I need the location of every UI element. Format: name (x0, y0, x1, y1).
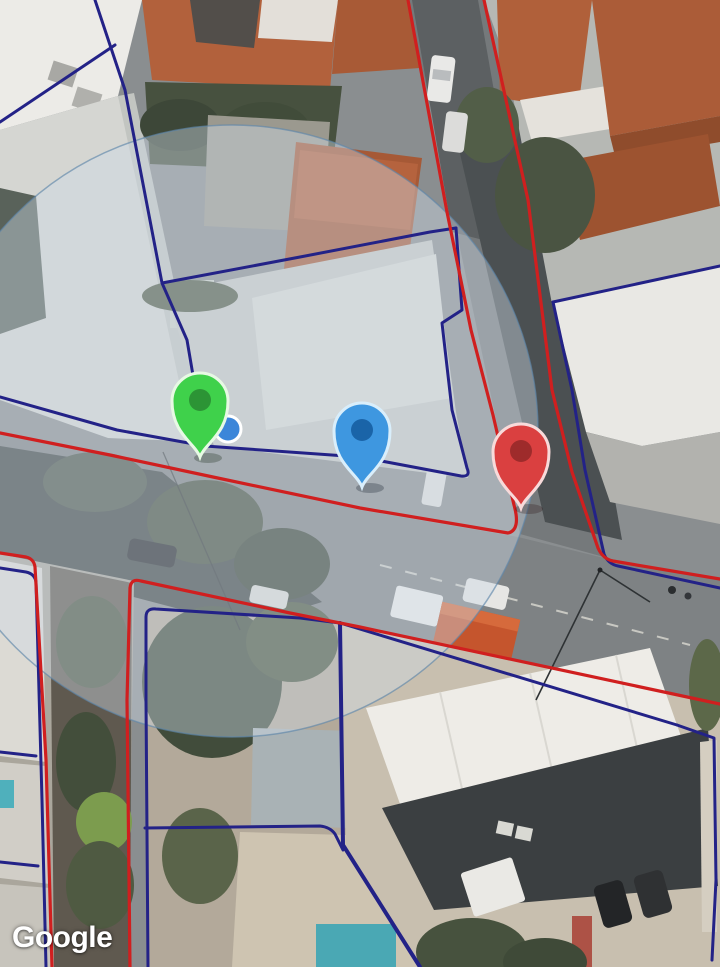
pin-inner-dot (510, 440, 532, 462)
satellite-imagery (0, 0, 720, 967)
map-canvas[interactable]: Google (0, 0, 720, 967)
pin-inner-dot (189, 389, 211, 411)
google-watermark-text: Google (12, 921, 112, 954)
google-watermark: Google (12, 921, 112, 955)
pin-inner-dot (351, 419, 373, 441)
